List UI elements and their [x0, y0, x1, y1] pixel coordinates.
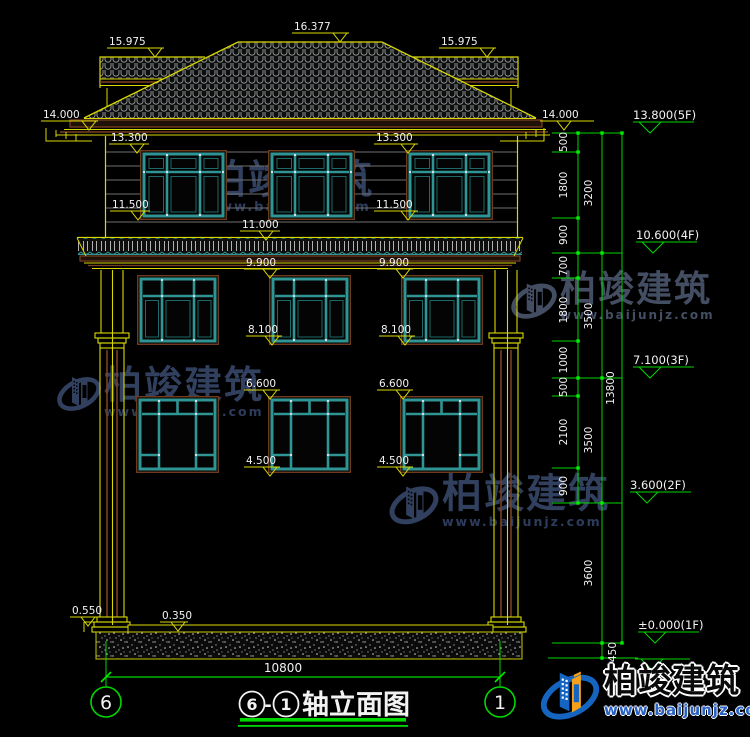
floor-flag-5f: 13.800(5F) [633, 108, 696, 133]
window [402, 276, 483, 345]
title-axis-to: 1 [280, 695, 291, 714]
svg-text:2100: 2100 [558, 419, 570, 446]
dimension-values: 500 1800 900 700 1800 1000 500 2100 900 … [558, 132, 619, 662]
svg-text:900: 900 [558, 225, 570, 245]
window [269, 151, 355, 220]
windows-2f [137, 397, 483, 473]
svg-text:7.100(3F): 7.100(3F) [633, 353, 689, 367]
site-logo-icon [538, 652, 602, 732]
mid-roof-band [77, 238, 523, 269]
drawing-title: 6 - 1 轴立面图 [238, 689, 410, 727]
svg-text:11.500: 11.500 [112, 199, 149, 211]
span-dimension-value: 10800 [264, 661, 302, 675]
svg-text:3200: 3200 [583, 180, 595, 207]
level-marker-14.000-right: 14.000 [540, 109, 594, 130]
svg-text:500: 500 [558, 132, 570, 152]
svg-text:0.350: 0.350 [162, 610, 192, 622]
ground-plinth [84, 622, 522, 659]
svg-text:8.100: 8.100 [381, 324, 411, 336]
level-marker-13.300-right: 13.300 [374, 132, 418, 153]
elevation-drawing: 16.377 15.975 15.975 14.000 14.000 13.30… [0, 0, 750, 737]
svg-text:14.000: 14.000 [542, 109, 579, 121]
svg-text:3500: 3500 [583, 303, 595, 330]
svg-text:11.000: 11.000 [242, 219, 279, 231]
svg-text:13.300: 13.300 [376, 132, 413, 144]
svg-text:13800: 13800 [605, 371, 617, 404]
level-marker-9.900-right: 9.900 [377, 257, 413, 278]
svg-text:15.975: 15.975 [109, 36, 146, 48]
level-marker-6.600-left: 6.600 [244, 378, 280, 399]
site-logo-url: www.baijunjz.com [604, 701, 750, 719]
svg-text:11.500: 11.500 [376, 199, 413, 211]
cad-elevation-screenshot: 柏竣建筑 www.baijunjz.com 柏竣建筑 www.baijunjz.… [0, 0, 750, 737]
level-marker-0.550: 0.550 [70, 605, 102, 626]
title-axis-from: 6 [246, 695, 257, 714]
floor-level-flags: 13.800(5F) 10.600(4F) 7.100(3F) 3.600(2F… [630, 108, 703, 670]
axis-bubble-right-label: 1 [494, 692, 506, 714]
svg-text:900: 900 [558, 476, 570, 496]
column-right [486, 270, 526, 632]
svg-text:3500: 3500 [583, 427, 595, 454]
svg-text:500: 500 [558, 377, 570, 397]
svg-text:3.600(2F): 3.600(2F) [630, 478, 686, 492]
svg-text:16.377: 16.377 [294, 21, 331, 33]
svg-text:9.900: 9.900 [246, 257, 276, 269]
windows-3f [138, 276, 483, 345]
svg-text:10.600(4F): 10.600(4F) [636, 228, 699, 242]
level-marker-13.300-left: 13.300 [109, 132, 149, 153]
level-marker-15.975-right: 15.975 [439, 36, 496, 57]
dimension-chain: 500 1800 900 700 1800 1000 500 2100 900 … [548, 108, 703, 670]
svg-text:1000: 1000 [558, 347, 570, 374]
svg-text:13.300: 13.300 [111, 132, 148, 144]
svg-text:1800: 1800 [558, 297, 570, 324]
site-logo-brand: 柏竣建筑 [604, 664, 750, 697]
svg-text:4.500: 4.500 [379, 455, 409, 467]
window [401, 397, 483, 473]
site-logo: 柏竣建筑 www.baijunjz.com [538, 652, 750, 737]
window [137, 397, 219, 473]
svg-text:4.500: 4.500 [246, 455, 276, 467]
level-marker-11.000: 11.000 [240, 219, 280, 240]
level-marker-15.975-left: 15.975 [107, 36, 164, 57]
window [269, 397, 351, 473]
title-dash: - [264, 695, 271, 716]
level-marker-9.900-left: 9.900 [244, 257, 280, 278]
svg-text:0.550: 0.550 [72, 605, 102, 617]
svg-text:9.900: 9.900 [379, 257, 409, 269]
window [407, 151, 493, 220]
floor-flag-1f: ±0.000(1F) [638, 618, 703, 643]
level-marker-6.600-right: 6.600 [377, 378, 413, 399]
svg-text:3600: 3600 [583, 560, 595, 587]
windows-4f [141, 151, 493, 220]
window [141, 151, 227, 220]
svg-text:±0.000(1F): ±0.000(1F) [638, 618, 703, 632]
title-text: 轴立面图 [302, 689, 410, 721]
svg-text:6.600: 6.600 [246, 378, 276, 390]
svg-text:1800: 1800 [558, 172, 570, 199]
svg-text:13.800(5F): 13.800(5F) [633, 108, 696, 122]
floor-flag-3f: 7.100(3F) [633, 353, 694, 378]
floor-flag-2f: 3.600(2F) [630, 478, 691, 503]
axis-bubble-left-label: 6 [100, 692, 112, 714]
svg-text:8.100: 8.100 [248, 324, 278, 336]
svg-text:700: 700 [558, 256, 570, 276]
svg-text:14.000: 14.000 [43, 109, 80, 121]
window [270, 276, 351, 345]
floor-flag-4f: 10.600(4F) [636, 228, 699, 253]
window [138, 276, 219, 345]
level-marker-16.377: 16.377 [292, 21, 349, 42]
svg-text:15.975: 15.975 [441, 36, 478, 48]
svg-text:6.600: 6.600 [379, 378, 409, 390]
